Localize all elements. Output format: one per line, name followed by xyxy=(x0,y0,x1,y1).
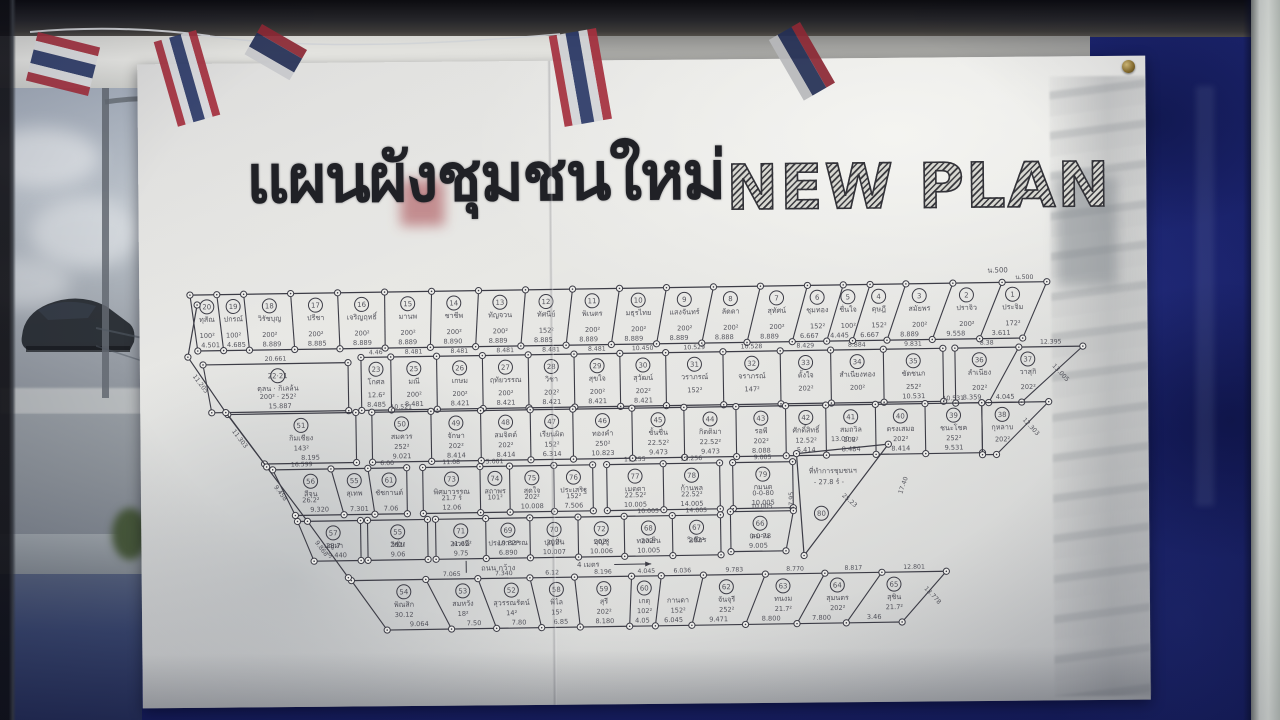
svg-text:8.414: 8.414 xyxy=(891,444,910,452)
svg-text:สุวรรณรัตน์: สุวรรณรัตน์ xyxy=(493,598,529,608)
svg-text:3.46: 3.46 xyxy=(867,613,882,621)
svg-text:9.831: 9.831 xyxy=(904,341,922,348)
photo-of-notice-board: แผนผังชุมชนใหม่ NEW PLAN 20ทุสัณ100²4.50… xyxy=(0,0,1280,720)
svg-text:21.7 ร์: 21.7 ร์ xyxy=(442,494,463,502)
svg-text:สมัยพร: สมัยพร xyxy=(908,303,930,312)
svg-text:11.08: 11.08 xyxy=(442,459,460,466)
svg-text:2: 2 xyxy=(964,291,969,299)
subdivision-map: 20ทุสัณ100²4.50119ปกรณ์100²4.68518วิรัชบ… xyxy=(143,254,1149,699)
svg-text:เจริญฤทธิ์: เจริญฤทธิ์ xyxy=(347,311,379,321)
svg-text:200²: 200² xyxy=(585,326,601,334)
svg-text:202²: 202² xyxy=(830,604,846,612)
svg-text:8.38: 8.38 xyxy=(980,340,994,347)
svg-text:56: 56 xyxy=(306,478,316,486)
svg-text:16.599: 16.599 xyxy=(291,461,313,468)
svg-text:202²: 202² xyxy=(498,441,514,449)
svg-text:ถนน กว้าง: ถนน กว้าง xyxy=(481,563,516,573)
svg-text:7.065: 7.065 xyxy=(443,571,461,578)
svg-text:เกษม: เกษม xyxy=(452,376,469,385)
svg-text:ชัชกานต์: ชัชกานต์ xyxy=(375,488,403,497)
svg-text:4.501: 4.501 xyxy=(201,341,220,349)
svg-text:202²: 202² xyxy=(689,536,705,544)
svg-text:200²: 200² xyxy=(631,325,647,333)
svg-text:39: 39 xyxy=(949,412,958,420)
svg-text:ตรงเสมอ: ตรงเสมอ xyxy=(886,424,914,433)
svg-text:22.52²: 22.52² xyxy=(625,491,647,499)
svg-text:พิเนตร: พิเนตร xyxy=(582,309,603,318)
svg-text:36: 36 xyxy=(975,356,985,364)
svg-text:152²: 152² xyxy=(687,386,703,394)
svg-text:7.50: 7.50 xyxy=(467,619,482,627)
svg-text:61: 61 xyxy=(385,476,394,484)
svg-text:9.021: 9.021 xyxy=(393,452,412,460)
svg-text:รอพี: รอพี xyxy=(755,426,768,435)
svg-text:1: 1 xyxy=(1010,291,1015,299)
svg-text:200²: 200² xyxy=(677,324,693,332)
svg-text:202²: 202² xyxy=(524,493,540,501)
svg-text:11.256: 11.256 xyxy=(680,455,702,462)
svg-text:สำเนียงทอง: สำเนียงทอง xyxy=(839,369,875,379)
svg-text:12.52²: 12.52² xyxy=(795,436,817,444)
svg-text:200²: 200² xyxy=(452,390,468,398)
svg-text:200²: 200² xyxy=(723,324,739,332)
svg-text:เกตุ: เกตุ xyxy=(639,596,651,605)
svg-text:- 27.8 ร์ -: - 27.8 ร์ - xyxy=(814,478,845,486)
svg-text:8: 8 xyxy=(728,295,733,303)
svg-text:22.52²: 22.52² xyxy=(681,490,703,498)
svg-text:ชื่นใจ: ชื่นใจ xyxy=(839,305,857,314)
svg-text:200²: 200² xyxy=(407,390,423,398)
tape-residue xyxy=(1196,86,1214,506)
svg-text:มณี: มณี xyxy=(408,377,420,386)
svg-text:4.445: 4.445 xyxy=(830,331,849,339)
svg-text:26.2²: 26.2² xyxy=(302,496,320,504)
svg-text:51: 51 xyxy=(296,422,305,430)
svg-text:มานพ: มานพ xyxy=(399,312,418,321)
svg-text:สมถวิล: สมถวิล xyxy=(840,425,862,434)
svg-text:8.770: 8.770 xyxy=(786,566,804,573)
svg-text:31: 31 xyxy=(690,361,699,369)
svg-text:29: 29 xyxy=(593,362,602,370)
svg-text:28.7: 28.7 xyxy=(326,542,341,550)
svg-text:8.889: 8.889 xyxy=(760,332,779,340)
svg-text:202²: 202² xyxy=(596,608,612,616)
svg-text:สมหวัง: สมหวัง xyxy=(452,599,474,608)
svg-text:19: 19 xyxy=(229,303,238,311)
svg-text:200² · 252²: 200² · 252² xyxy=(260,392,297,401)
svg-text:80: 80 xyxy=(817,510,826,518)
svg-text:33: 33 xyxy=(801,359,810,367)
svg-text:10.521: 10.521 xyxy=(390,404,412,411)
svg-text:8.800: 8.800 xyxy=(762,614,781,622)
svg-text:202²: 202² xyxy=(893,435,909,443)
svg-text:โกศล: โกศล xyxy=(368,377,385,386)
svg-text:17.40: 17.40 xyxy=(897,476,909,495)
svg-text:8.884: 8.884 xyxy=(848,342,866,349)
svg-text:202²: 202² xyxy=(754,437,770,445)
svg-text:8.421: 8.421 xyxy=(451,399,470,407)
svg-text:10.005: 10.005 xyxy=(751,503,773,510)
svg-text:77: 77 xyxy=(631,473,640,481)
glass-reflection xyxy=(0,88,142,720)
svg-text:48: 48 xyxy=(501,419,510,427)
svg-text:10.005: 10.005 xyxy=(637,508,659,515)
svg-text:21.7²: 21.7² xyxy=(775,605,793,613)
svg-text:78: 78 xyxy=(687,472,696,480)
svg-text:10.528: 10.528 xyxy=(741,343,763,350)
svg-text:ทุสัณ: ทุสัณ xyxy=(199,315,215,324)
svg-text:202²: 202² xyxy=(798,384,814,392)
svg-text:202²: 202² xyxy=(972,384,988,392)
svg-text:9.783: 9.783 xyxy=(725,566,743,573)
svg-text:9.473: 9.473 xyxy=(701,447,720,455)
svg-text:200²: 200² xyxy=(590,388,606,396)
thai-flags-reflection xyxy=(0,14,900,144)
svg-text:200²: 200² xyxy=(354,329,370,337)
svg-text:200²: 200² xyxy=(769,323,785,331)
svg-text:202²: 202² xyxy=(636,387,652,395)
svg-text:ชั้นชื่น: ชั้นชื่น xyxy=(648,427,668,437)
svg-text:152²: 152² xyxy=(871,321,887,329)
svg-text:100²: 100² xyxy=(226,331,242,339)
svg-text:25: 25 xyxy=(409,365,418,373)
svg-text:กุหลาบ: กุหลาบ xyxy=(991,422,1014,431)
svg-text:54: 54 xyxy=(399,588,409,596)
svg-text:8.481: 8.481 xyxy=(405,348,423,355)
svg-text:ปกรณ์: ปกรณ์ xyxy=(224,314,244,323)
svg-text:ชนะโชค: ชนะโชค xyxy=(940,423,968,432)
svg-text:20.661: 20.661 xyxy=(265,356,287,363)
svg-text:10.005: 10.005 xyxy=(637,546,660,554)
svg-text:22·21: 22·21 xyxy=(268,372,288,380)
svg-text:49: 49 xyxy=(451,419,460,427)
svg-text:10: 10 xyxy=(634,297,643,305)
svg-text:38: 38 xyxy=(998,411,1007,419)
svg-text:8.888: 8.888 xyxy=(715,333,734,341)
svg-text:60: 60 xyxy=(640,584,649,592)
svg-text:8.889: 8.889 xyxy=(398,338,417,346)
svg-text:สุรี: สุรี xyxy=(600,597,609,606)
svg-text:สุทัศน์: สุทัศน์ xyxy=(767,306,786,315)
svg-text:68: 68 xyxy=(644,524,653,532)
svg-text:45: 45 xyxy=(654,416,663,424)
svg-text:สุเทพ: สุเทพ xyxy=(346,488,363,497)
svg-text:8.481: 8.481 xyxy=(450,348,468,355)
svg-text:250²: 250² xyxy=(595,440,611,448)
svg-text:8.817: 8.817 xyxy=(844,565,862,572)
thai-flag-icon xyxy=(769,22,835,101)
push-pin xyxy=(1122,60,1135,73)
svg-text:จันจุรี: จันจุรี xyxy=(718,595,735,604)
svg-text:0-0-80: 0-0-80 xyxy=(752,489,774,497)
svg-text:202²: 202² xyxy=(641,537,657,545)
svg-text:9.320: 9.320 xyxy=(310,505,329,513)
svg-text:สมควร: สมควร xyxy=(391,432,413,441)
svg-text:26: 26 xyxy=(455,364,465,372)
svg-text:30.12: 30.12 xyxy=(395,611,414,619)
svg-text:143²: 143² xyxy=(294,444,310,452)
svg-text:12.6²: 12.6² xyxy=(368,391,386,399)
thai-flag-icon xyxy=(549,28,612,127)
svg-text:6: 6 xyxy=(815,294,820,302)
svg-text:75: 75 xyxy=(527,474,536,482)
svg-text:สมจิตต์: สมจิตต์ xyxy=(494,430,517,439)
svg-text:202²: 202² xyxy=(995,435,1011,443)
svg-text:13.00 ม.: 13.00 ม. xyxy=(831,435,858,443)
thai-flag-icon xyxy=(245,24,308,80)
svg-text:252²: 252² xyxy=(719,606,735,614)
svg-text:วราภรณ์: วราภรณ์ xyxy=(681,372,709,381)
svg-text:44: 44 xyxy=(706,415,716,423)
svg-text:13: 13 xyxy=(495,299,504,307)
svg-text:7: 7 xyxy=(774,294,779,302)
svg-text:200²: 200² xyxy=(308,330,324,338)
svg-text:7.06: 7.06 xyxy=(384,504,399,512)
svg-text:8.889: 8.889 xyxy=(353,339,372,347)
svg-text:12.395: 12.395 xyxy=(1040,338,1062,345)
svg-text:6.667: 6.667 xyxy=(860,331,879,339)
plan-title-english: NEW PLAN xyxy=(726,148,1112,224)
svg-text:4.685: 4.685 xyxy=(227,341,246,349)
svg-text:สุวัฒน์: สุวัฒน์ xyxy=(633,373,653,382)
svg-text:200²: 200² xyxy=(959,320,975,328)
svg-text:8.885: 8.885 xyxy=(308,339,327,347)
svg-text:59: 59 xyxy=(599,585,608,593)
svg-text:200²: 200² xyxy=(498,389,514,397)
svg-text:15: 15 xyxy=(403,300,412,308)
paper-shadow xyxy=(142,646,1150,709)
svg-text:4.46: 4.46 xyxy=(369,349,383,356)
svg-text:7.800: 7.800 xyxy=(812,614,831,622)
svg-text:65: 65 xyxy=(889,581,898,589)
svg-text:ตั้งใจ: ตั้งใจ xyxy=(798,369,814,379)
svg-text:8.359: 8.359 xyxy=(963,393,982,401)
svg-text:252²: 252² xyxy=(394,443,410,451)
svg-text:5.001: 5.001 xyxy=(486,458,504,465)
window-frame-shadow xyxy=(1243,0,1251,720)
svg-text:3: 3 xyxy=(917,292,922,300)
svg-text:8.196: 8.196 xyxy=(594,569,612,576)
svg-text:32: 32 xyxy=(747,360,756,368)
svg-text:202²: 202² xyxy=(1021,383,1037,391)
svg-text:ลำเนียง: ลำเนียง xyxy=(968,368,992,377)
svg-text:พิณสิก: พิณสิก xyxy=(394,600,414,609)
svg-text:ลัดดา: ลัดดา xyxy=(722,306,740,315)
svg-text:ปราจิว: ปราจิว xyxy=(956,303,977,312)
svg-text:ฤทัยวรรณ: ฤทัยวรรณ xyxy=(490,375,522,385)
svg-text:ทัญจวน: ทัญจวน xyxy=(488,310,512,319)
svg-text:200²: 200² xyxy=(493,327,509,335)
svg-text:55: 55 xyxy=(350,477,359,485)
svg-text:ปรีชา: ปรีชา xyxy=(307,313,324,322)
svg-text:9.473: 9.473 xyxy=(649,448,668,456)
svg-text:55: 55 xyxy=(393,528,402,536)
svg-text:11.255: 11.255 xyxy=(624,456,646,463)
svg-text:27: 27 xyxy=(501,364,510,372)
svg-text:6.667: 6.667 xyxy=(800,332,819,340)
svg-text:9.471: 9.471 xyxy=(709,615,728,623)
svg-text:4.05: 4.05 xyxy=(635,616,650,624)
svg-text:9.005: 9.005 xyxy=(749,542,768,550)
svg-text:วาสุกิ: วาสุกิ xyxy=(1019,367,1036,376)
svg-text:8.421: 8.421 xyxy=(588,397,607,405)
svg-text:8.889: 8.889 xyxy=(624,335,643,343)
svg-text:101²: 101² xyxy=(488,493,504,501)
svg-text:15.887: 15.887 xyxy=(269,402,292,410)
svg-text:10.450: 10.450 xyxy=(632,345,654,352)
svg-text:71: 71 xyxy=(456,527,465,535)
svg-text:14.005: 14.005 xyxy=(685,507,707,514)
svg-text:34: 34 xyxy=(853,358,863,366)
svg-text:ศักดิ์สิทธิ์: ศักดิ์สิทธิ์ xyxy=(792,424,821,434)
svg-text:21.7²: 21.7² xyxy=(886,603,904,611)
svg-text:ทองคำ: ทองคำ xyxy=(592,428,614,437)
svg-text:19.82²: 19.82² xyxy=(497,539,519,547)
svg-text:22.52²: 22.52² xyxy=(648,439,670,447)
svg-text:ชุมทอง: ชุมทอง xyxy=(806,305,828,314)
svg-text:152²: 152² xyxy=(566,492,582,500)
svg-text:200²: 200² xyxy=(400,329,416,337)
svg-text:จราภรณ์: จราภรณ์ xyxy=(738,371,766,380)
svg-text:20: 20 xyxy=(202,303,211,311)
svg-text:11: 11 xyxy=(588,297,597,305)
svg-text:4.045: 4.045 xyxy=(996,393,1015,401)
svg-text:64: 64 xyxy=(833,581,843,589)
svg-text:16: 16 xyxy=(357,301,367,309)
svg-text:147²: 147² xyxy=(744,385,760,393)
svg-text:สุชิน: สุชิน xyxy=(887,592,901,601)
svg-text:18: 18 xyxy=(265,302,274,310)
paper-sheet: แผนผังชุมชนใหม่ NEW PLAN 20ทุสัณ100²4.50… xyxy=(137,56,1151,709)
svg-text:30: 30 xyxy=(638,361,647,369)
svg-text:72: 72 xyxy=(597,525,606,533)
svg-text:63: 63 xyxy=(778,582,787,590)
svg-text:17: 17 xyxy=(311,302,320,310)
svg-text:50: 50 xyxy=(397,420,406,428)
svg-text:6.00: 6.00 xyxy=(380,460,394,467)
svg-text:9.531: 9.531 xyxy=(945,443,964,451)
svg-text:202²: 202² xyxy=(449,442,465,450)
svg-text:200²: 200² xyxy=(850,384,866,392)
svg-text:18²: 18² xyxy=(458,610,470,618)
svg-text:กิตติมา: กิตติมา xyxy=(699,427,722,436)
svg-text:23: 23 xyxy=(371,366,380,374)
svg-text:10.531: 10.531 xyxy=(942,395,964,402)
svg-text:8.481: 8.481 xyxy=(588,346,606,353)
svg-text:8.481: 8.481 xyxy=(496,347,514,354)
svg-text:สุมนตร: สุมนตร xyxy=(826,593,849,602)
svg-text:10.006: 10.006 xyxy=(590,547,613,555)
svg-text:0-0-78: 0-0-78 xyxy=(749,532,771,540)
svg-text:8.889: 8.889 xyxy=(579,335,598,343)
svg-text:172²: 172² xyxy=(1005,319,1021,327)
thai-flag-icon xyxy=(154,30,221,127)
svg-text:152²: 152² xyxy=(810,322,826,330)
svg-text:ชาชีพ: ชาชีพ xyxy=(445,311,464,320)
svg-text:6.036: 6.036 xyxy=(673,567,691,574)
svg-text:8.889: 8.889 xyxy=(263,340,282,348)
svg-text:กานดา: กานดา xyxy=(667,595,689,604)
svg-text:14: 14 xyxy=(449,299,459,307)
svg-text:12.801: 12.801 xyxy=(903,564,925,571)
svg-text:8.429: 8.429 xyxy=(796,342,814,349)
svg-text:79: 79 xyxy=(758,471,767,479)
svg-text:8.889: 8.889 xyxy=(489,337,508,345)
svg-text:4: 4 xyxy=(876,293,881,301)
svg-text:9.75: 9.75 xyxy=(454,549,469,557)
svg-text:จักษา: จักษา xyxy=(447,431,464,440)
svg-text:252²: 252² xyxy=(906,383,922,391)
thai-flag-icon xyxy=(26,32,100,96)
svg-text:76: 76 xyxy=(569,474,579,482)
svg-text:67: 67 xyxy=(692,524,701,532)
svg-text:200²: 200² xyxy=(262,331,278,339)
svg-text:53: 53 xyxy=(458,587,467,595)
svg-text:62: 62 xyxy=(722,583,731,591)
bush-reflection xyxy=(112,508,142,560)
svg-text:12.06: 12.06 xyxy=(442,503,461,511)
svg-text:6.045: 6.045 xyxy=(664,616,683,624)
svg-text:9.064: 9.064 xyxy=(410,620,429,628)
svg-text:37: 37 xyxy=(1023,355,1032,363)
svg-text:4.045: 4.045 xyxy=(637,568,655,575)
svg-text:200²: 200² xyxy=(912,321,928,329)
svg-text:14²: 14² xyxy=(506,609,518,617)
svg-text:43: 43 xyxy=(756,415,765,423)
svg-text:สุขใจ: สุขใจ xyxy=(589,374,606,383)
svg-text:152²: 152² xyxy=(670,606,686,614)
svg-text:10.529: 10.529 xyxy=(683,344,705,351)
svg-text:5: 5 xyxy=(846,293,851,301)
svg-text:21.62²: 21.62² xyxy=(450,540,472,548)
svg-text:41: 41 xyxy=(846,413,855,421)
svg-text:8.421: 8.421 xyxy=(496,399,515,407)
svg-text:วิรัชบุญ: วิรัชบุญ xyxy=(258,314,282,323)
svg-text:มธุรไทย: มธุรไทย xyxy=(626,308,652,317)
svg-text:8.889: 8.889 xyxy=(670,334,689,342)
svg-text:ที่ทำการชุมชนฯ: ที่ทำการชุมชนฯ xyxy=(809,466,857,476)
svg-text:8.180: 8.180 xyxy=(595,617,614,625)
svg-text:ดุษฎี: ดุษฎี xyxy=(872,304,887,313)
svg-text:8.421: 8.421 xyxy=(634,396,653,404)
svg-text:252²: 252² xyxy=(946,434,962,442)
svg-text:100²: 100² xyxy=(841,322,857,330)
svg-text:ประจิม: ประจิม xyxy=(1002,302,1024,311)
svg-text:3.611: 3.611 xyxy=(992,329,1011,337)
svg-text:10.823: 10.823 xyxy=(591,449,614,457)
svg-text:8.889: 8.889 xyxy=(900,330,919,338)
svg-text:57: 57 xyxy=(329,529,338,537)
svg-text:9.005: 9.005 xyxy=(754,454,772,461)
subdivision-plan-svg: 20ทุสัณ100²4.50119ปกรณ์100²4.68518วิรัชบ… xyxy=(141,250,1150,702)
svg-text:น.500: น.500 xyxy=(987,266,1007,274)
svg-text:9.440: 9.440 xyxy=(328,551,347,559)
svg-text:10.531: 10.531 xyxy=(902,392,925,400)
svg-text:6.890: 6.890 xyxy=(499,549,518,557)
svg-text:ชัดชนก: ชัดชนก xyxy=(902,369,926,378)
svg-text:กิมเชียง: กิมเชียง xyxy=(289,433,313,442)
svg-text:66: 66 xyxy=(756,520,766,528)
svg-text:46: 46 xyxy=(598,417,608,425)
svg-text:25.23: 25.23 xyxy=(840,492,858,509)
svg-text:4 เมตร: 4 เมตร xyxy=(577,560,600,569)
svg-text:69: 69 xyxy=(503,527,512,535)
svg-text:200²: 200² xyxy=(447,328,463,336)
svg-text:40: 40 xyxy=(896,412,905,420)
svg-text:74: 74 xyxy=(490,475,500,483)
svg-text:202²: 202² xyxy=(594,538,610,546)
svg-text:7.301: 7.301 xyxy=(350,505,369,513)
